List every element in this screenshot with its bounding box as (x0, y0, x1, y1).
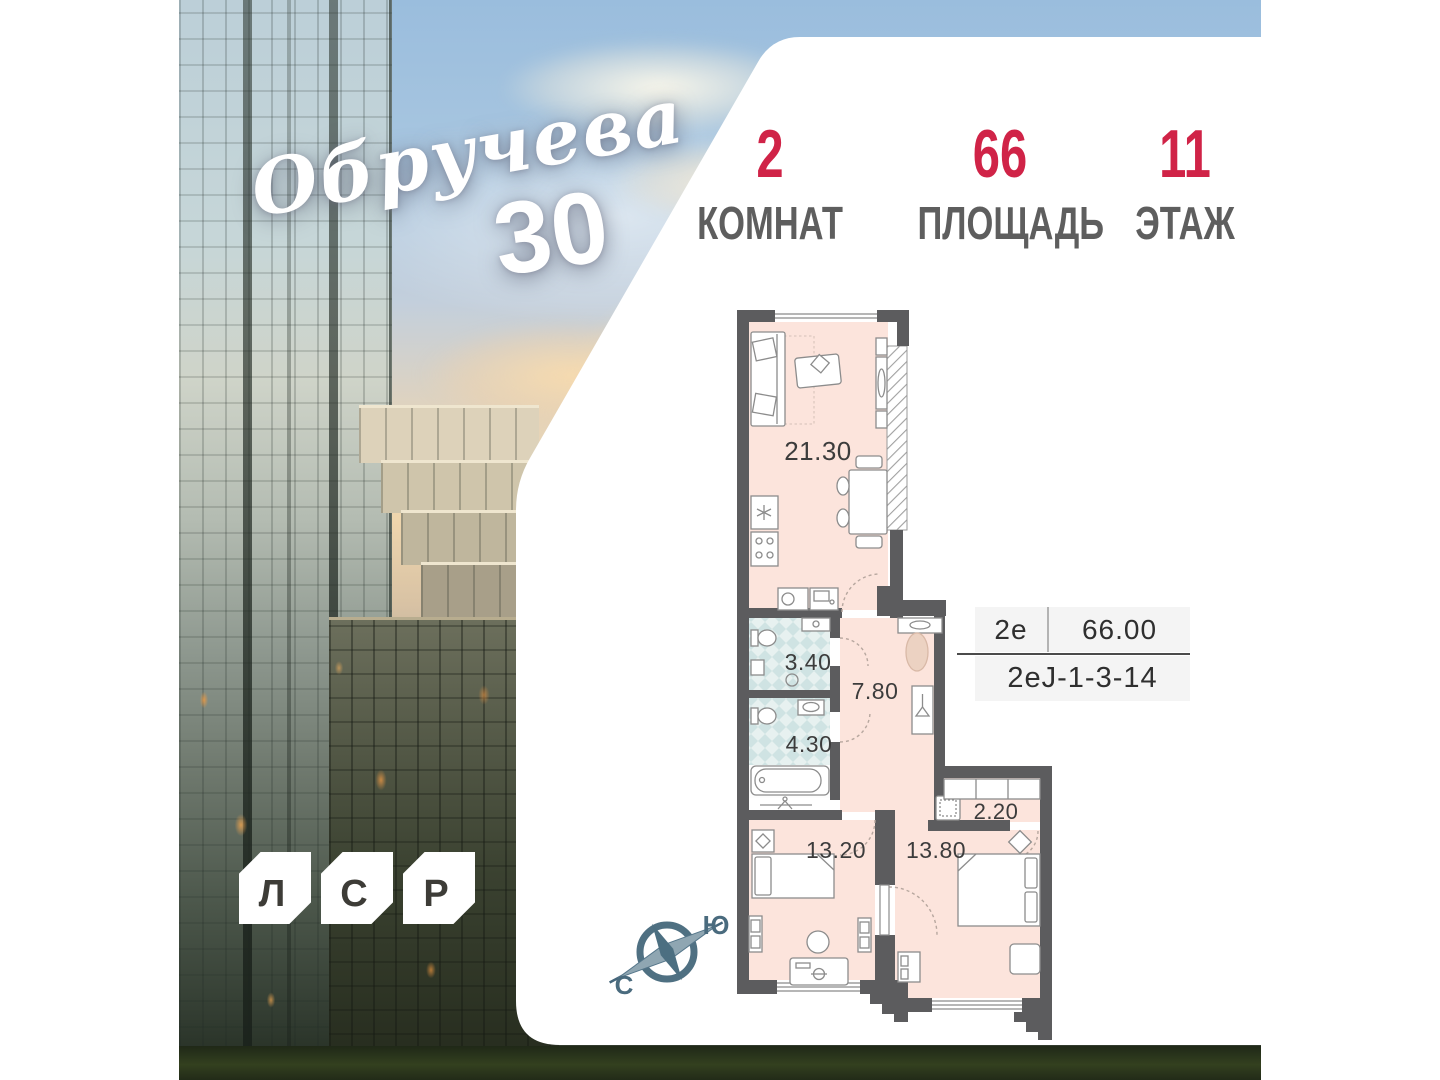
room-label-bed2: 13.80 (906, 837, 966, 863)
stat-floor-label: ЭТАЖ (1103, 200, 1268, 246)
stat-rooms: 2 КОМНАТ (660, 120, 880, 246)
door-leaf (880, 885, 889, 935)
room-label-bath: 4.30 (786, 731, 833, 757)
listing-poster: Обручева 30 Л С Р 2 КОМНАТ 66 ПЛОЩАДЬ 11… (0, 0, 1440, 1080)
compass: С Ю (600, 890, 740, 1010)
room-label-storage: 2.20 (974, 799, 1019, 824)
stat-floor: 11 ЭТАЖ (1075, 120, 1295, 246)
stat-rooms-label: КОМНАТ (688, 200, 853, 246)
room-label-hall: 7.80 (852, 678, 899, 704)
room-label-wc-small: 3.40 (785, 649, 832, 675)
shaft-hatch (887, 346, 907, 530)
compass-south-label: Ю (703, 910, 730, 940)
stat-rooms-value: 2 (691, 120, 849, 188)
room-label-bed1: 13.20 (806, 837, 866, 863)
stat-area-value: 66 (921, 120, 1079, 188)
room-label-living: 21.30 (784, 436, 852, 466)
compass-north-label: С (615, 970, 634, 1000)
apartment-area-badge: 66.00 (1049, 607, 1190, 652)
floor-plan: 21.30 3.40 7.80 4.30 13.20 13.80 2.20 (730, 300, 1060, 1060)
stat-floor-value: 11 (1106, 120, 1264, 188)
stat-area-label: ПЛОЩАДЬ (918, 200, 1083, 246)
